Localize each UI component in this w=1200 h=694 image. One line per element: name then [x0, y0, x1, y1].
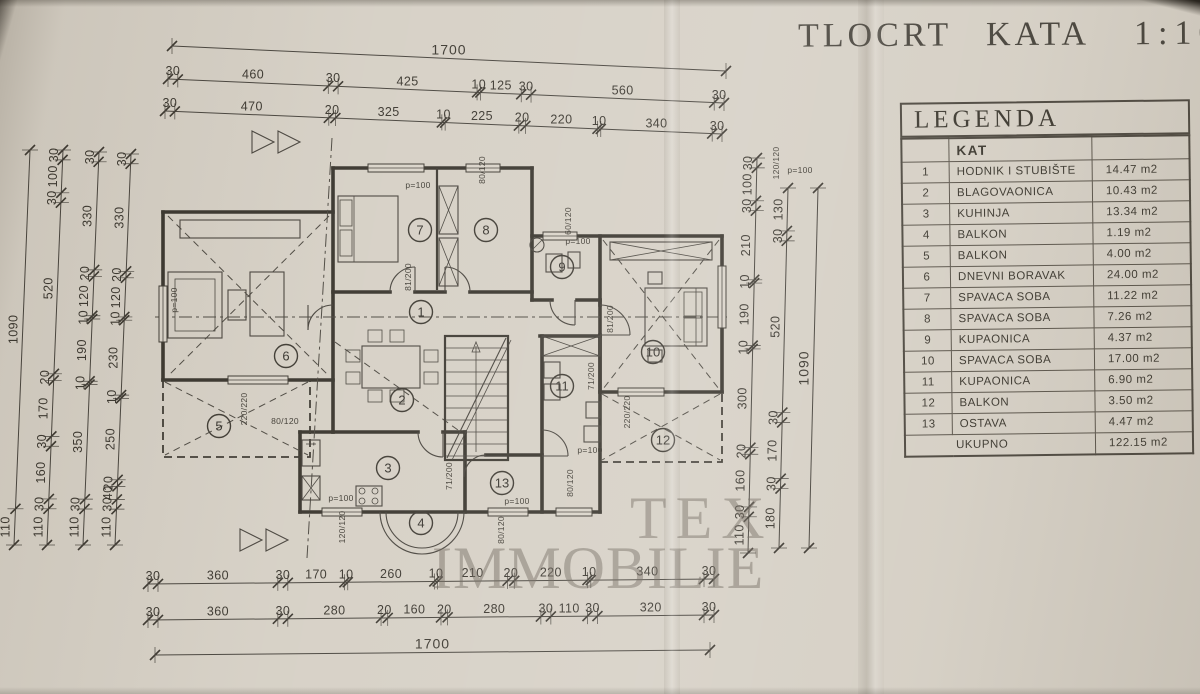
chair — [368, 330, 382, 342]
dimension-value: 170 — [37, 397, 51, 419]
dimension-value: 1090 — [7, 315, 21, 344]
dimension-value: 360 — [207, 604, 229, 618]
dimension-value: 560 — [612, 84, 634, 98]
dimension-value: 20 — [734, 444, 748, 459]
legend-row-name: HODNIK I STUBIŠTE — [949, 160, 1092, 183]
legend-row-area: 14.47 m2 — [1092, 159, 1190, 181]
plan-annotation: 71/200 — [586, 362, 596, 390]
title-scale: 1:100 — [1134, 14, 1200, 52]
dimension-value: 110 — [100, 517, 114, 538]
plan-annotation: p=100 — [787, 165, 812, 175]
dimension-value: 30 — [740, 198, 754, 213]
door-swing — [550, 300, 575, 325]
dimension-value: 30 — [771, 229, 785, 244]
dimension-value: 1090 — [796, 350, 812, 385]
legend-row-name: KUPAONICA — [951, 328, 1094, 351]
dimension-value: 230 — [107, 347, 121, 369]
room-number: 9 — [558, 260, 565, 275]
room-number: 10 — [646, 345, 660, 360]
dimension-value: 470 — [241, 100, 263, 114]
dimension-value: 330 — [112, 207, 126, 229]
dimension-value: 30 — [83, 150, 97, 165]
plan-annotation: 220/220 — [622, 396, 632, 429]
legend-title: LEGENDA — [900, 99, 1190, 138]
shower — [584, 426, 600, 442]
burner — [359, 498, 365, 504]
dimension-value: 170 — [765, 440, 779, 462]
legend-row-number: 9 — [904, 330, 952, 352]
dimension-value: 160 — [34, 462, 48, 484]
legend-row-area: 13.34 m2 — [1093, 201, 1191, 223]
legend-row-name: SPAVACA SOBA — [951, 286, 1094, 309]
plan-annotation: p=100 — [504, 496, 529, 506]
legend-total-area: 122.15 m2 — [1095, 432, 1193, 455]
dimension-value: 30 — [166, 64, 181, 78]
legend-row-name: BALKON — [952, 391, 1095, 414]
legend-row-area: 24.00 m2 — [1093, 264, 1191, 286]
dimension-value: 30 — [35, 434, 49, 449]
dimension-value: 30 — [163, 96, 178, 110]
legend-row-area: 11.22 m2 — [1094, 285, 1192, 307]
chair — [424, 350, 438, 362]
dimension-value: 425 — [397, 74, 419, 88]
dimension-value: 210 — [739, 234, 753, 256]
dimension-value: 360 — [207, 568, 229, 582]
dimension-value: 20 — [78, 266, 92, 281]
dimension-value: 10 — [339, 567, 354, 581]
burner — [359, 488, 365, 494]
dimension-value: 30 — [585, 601, 600, 615]
dimension-value: 250 — [103, 428, 117, 450]
plan-annotation: 120/120 — [771, 147, 781, 180]
legend-row-name: OSTAVA — [952, 412, 1095, 435]
dimension-value: 110 — [559, 601, 580, 615]
dimension-value: 30 — [702, 600, 717, 614]
plan-annotation: 81/200 — [403, 263, 413, 291]
room-number: 8 — [482, 223, 489, 238]
dimension-value: 340 — [636, 565, 658, 579]
legend-row-number: 3 — [902, 204, 950, 226]
room-number: 1 — [417, 305, 424, 320]
chair — [368, 390, 382, 402]
legend-total-row: UKUPNO122.15 m2 — [905, 432, 1193, 457]
plan-annotation: p=100 — [565, 236, 590, 246]
burner — [372, 498, 378, 504]
dimension-value: 1700 — [431, 42, 466, 58]
room-number: 7 — [416, 223, 423, 238]
dimension-value: 10 — [74, 376, 88, 391]
title-text: TLOCRT KATA — [798, 16, 1090, 55]
stair-cut-line — [452, 340, 511, 460]
plan-annotation: p=100 — [577, 445, 602, 455]
dimension-value: 10 — [76, 310, 90, 325]
plan-annotation: p=100 — [328, 493, 353, 503]
dimension-value: 180 — [764, 507, 778, 529]
dimension-value: 30 — [766, 410, 780, 425]
bed — [338, 196, 398, 262]
dimension-value: 350 — [71, 431, 85, 453]
plan-annotation: 80/120 — [565, 469, 575, 497]
legend-row-number: 8 — [903, 309, 951, 331]
legend-row-name: BALKON — [950, 223, 1093, 246]
legend-row-area: 4.00 m2 — [1093, 243, 1191, 265]
dimension-value: 130 — [771, 198, 785, 220]
dimension-value: 10 — [471, 77, 486, 91]
dimension-value: 190 — [75, 339, 89, 361]
legend-row-area: 1.19 m2 — [1093, 222, 1191, 244]
legend-row-area: 3.50 m2 — [1095, 390, 1193, 412]
chair — [346, 372, 360, 384]
dimension-value: 10 — [436, 108, 451, 122]
plan-annotation: p=100 — [405, 180, 430, 190]
room-number: 2 — [398, 393, 405, 408]
dimension-value: 20 — [377, 603, 392, 617]
room-number: 13 — [495, 476, 509, 491]
legend-panel: LEGENDA KAT1HODNIK I STUBIŠTE14.47 m22BL… — [900, 99, 1194, 458]
pillow — [684, 318, 702, 342]
section-marker-triangle — [240, 529, 262, 551]
legend-column-header: KAT — [949, 136, 1092, 161]
legend-header-num — [901, 138, 949, 162]
dimension-value: 20 — [110, 267, 124, 282]
chair — [390, 330, 404, 342]
dimension-value: 30 — [733, 504, 747, 519]
stair-cut-line — [447, 338, 506, 458]
legend-header-area — [1092, 135, 1190, 160]
plan-annotation: 80/120 — [477, 156, 487, 184]
scanned-floor-plan-page: 12345678910111213p=100p=100p=100p=100p=1… — [0, 0, 1200, 694]
room-number: 6 — [282, 349, 289, 364]
dimension-value: 10 — [582, 565, 597, 579]
legend-row-area: 17.00 m2 — [1094, 348, 1192, 370]
dimension-value: 10 — [737, 340, 751, 355]
toilet — [586, 402, 600, 418]
dimension-value: 100 — [46, 165, 60, 187]
plan-annotation: 60/120 — [563, 207, 573, 235]
legend-row-number: 4 — [902, 225, 950, 247]
legend-row-area: 4.37 m2 — [1094, 327, 1192, 349]
dimension-value: 160 — [734, 470, 748, 492]
dimension-line — [148, 615, 714, 620]
burner — [372, 488, 378, 494]
dimension-value: 30 — [33, 496, 47, 511]
door-swing — [464, 455, 486, 477]
chair — [424, 372, 438, 384]
legend-row-number: 12 — [904, 393, 952, 415]
pillow — [340, 200, 352, 226]
dimension-value: 260 — [380, 567, 402, 581]
legend-row-name: SPAVACA SOBA — [951, 349, 1094, 372]
dimension-value: 520 — [769, 316, 783, 338]
legend-row-area: 10.43 m2 — [1092, 180, 1190, 202]
dimension-value: 10 — [429, 566, 444, 580]
dimension-value: 320 — [640, 601, 662, 615]
dimension-value: 10 — [738, 274, 752, 289]
dimension-value: 460 — [242, 68, 264, 82]
dimension-value: 30 — [539, 601, 554, 615]
dimension-value: 20 — [515, 111, 530, 125]
room-number: 11 — [555, 379, 569, 394]
legend-row-number: 7 — [903, 288, 951, 310]
legend-row-name: KUPAONICA — [952, 370, 1095, 393]
dimension-value: 100 — [740, 173, 754, 195]
plan-annotation: 120/120 — [337, 511, 347, 544]
dimension-value: 330 — [80, 205, 94, 227]
dimension-value: 30 — [519, 79, 534, 93]
dimension-value: 10 — [105, 389, 119, 404]
dimension-value: 30 — [710, 119, 725, 133]
dimension-value: 20 — [504, 566, 519, 580]
plan-annotation: 81/200 — [605, 305, 615, 333]
legend-table: KAT1HODNIK I STUBIŠTE14.47 m22BLAGOVAONI… — [900, 134, 1194, 458]
section-marker-triangle — [278, 131, 300, 153]
dimension-value: 20 — [38, 370, 52, 385]
dimension-value: 160 — [403, 603, 425, 617]
dimension-value: 30 — [712, 88, 727, 102]
dimension-value: 30 — [326, 71, 341, 85]
legend-row-name: SPAVACA SOBA — [951, 307, 1094, 330]
dimension-value: 280 — [323, 603, 345, 617]
legend-header-row: KAT — [901, 135, 1189, 162]
dimension-value: 30 — [275, 604, 290, 618]
legend-total-label: UKUPNO — [905, 433, 1096, 457]
pillow — [684, 292, 702, 316]
dimension-value: 110 — [732, 524, 746, 545]
room-number: 4 — [417, 516, 424, 531]
section-marker-triangle — [252, 131, 274, 153]
legend-row-name: KUHINJA — [950, 202, 1093, 225]
legend-row-number: 10 — [904, 351, 952, 373]
legend-row-area: 6.90 m2 — [1095, 369, 1193, 391]
door-swing — [418, 432, 443, 457]
legend-row-area: 4.47 m2 — [1095, 411, 1193, 433]
legend-row-number: 1 — [902, 162, 950, 184]
dimension-value: 30 — [146, 569, 161, 583]
nightstand — [648, 272, 662, 284]
dimension-value: 125 — [490, 78, 512, 92]
dimension-value: 20 — [437, 602, 452, 616]
legend-row-name: DNEVNI BORAVAK — [950, 265, 1093, 288]
dimension-value: 10 — [592, 114, 607, 128]
dimension-value: 225 — [471, 109, 493, 123]
legend-row-number: 11 — [904, 372, 952, 394]
dimension-value: 20 — [325, 103, 340, 117]
sofa-cushion — [175, 279, 215, 331]
dimension-value: 280 — [483, 602, 505, 616]
legend-row-name: BALKON — [950, 244, 1093, 267]
dimension-value: 30 — [765, 476, 779, 491]
dimension-value: 220 — [550, 112, 572, 126]
dimension-value: 30 — [146, 605, 161, 619]
dimension-value: 220 — [540, 565, 562, 579]
section-marker-triangle — [266, 529, 288, 551]
legend-row-number: 6 — [903, 267, 951, 289]
dimension-value: 520 — [41, 277, 55, 299]
dimension-value: 30 — [45, 190, 59, 205]
dimension-line — [47, 150, 63, 545]
plan-annotation: 220/220 — [239, 393, 249, 426]
dimension-value: 30 — [702, 564, 717, 578]
dimension-value: 1700 — [415, 636, 450, 652]
door-swing — [542, 430, 568, 456]
dimension-value: 110 — [32, 516, 46, 537]
dimension-value: 120 — [109, 286, 123, 308]
dimension-value: 30 — [741, 156, 755, 171]
page-title: TLOCRT KATA1:100 — [798, 14, 1200, 55]
dimension-value: 30 — [275, 568, 290, 582]
dimension-value: 30 — [47, 148, 61, 163]
dimension-value: 300 — [736, 387, 750, 409]
dimension-value: 170 — [305, 568, 327, 582]
dimension-value: 30 — [101, 497, 115, 512]
dimension-value: 110 — [0, 516, 13, 537]
legend-row-number: 5 — [903, 246, 951, 268]
room-number: 12 — [656, 433, 670, 448]
legend-row-area: 7.26 m2 — [1094, 306, 1192, 328]
dining-table — [362, 346, 420, 388]
dimension-value: 110 — [68, 516, 82, 537]
dimension-value: 30 — [115, 152, 129, 167]
dimension-value: 190 — [737, 303, 751, 325]
room-number: 3 — [384, 461, 391, 476]
roof-dashed-line — [335, 342, 458, 430]
dimension-value: 210 — [462, 566, 484, 580]
dimension-value: 120 — [77, 285, 91, 307]
tv-shelf — [180, 220, 300, 238]
dimension-value: 10 — [108, 311, 122, 326]
dimension-line — [14, 150, 30, 545]
plan-annotation: 80/120 — [496, 516, 506, 544]
dimension-value: 30 — [69, 497, 83, 512]
plan-annotation: 71/200 — [444, 462, 454, 490]
room-number: 5 — [215, 419, 222, 434]
plan-annotation: p=100 — [169, 287, 179, 312]
legend-row-name: BLAGOVAONICA — [949, 181, 1092, 204]
dimension-value: 325 — [378, 105, 400, 119]
legend-row-number: 13 — [905, 414, 953, 436]
plan-annotation: 80/120 — [271, 416, 299, 426]
dimension-value: 340 — [645, 116, 667, 130]
legend-row-number: 2 — [902, 183, 950, 205]
pillow — [340, 230, 352, 256]
coffee-table — [228, 290, 246, 320]
